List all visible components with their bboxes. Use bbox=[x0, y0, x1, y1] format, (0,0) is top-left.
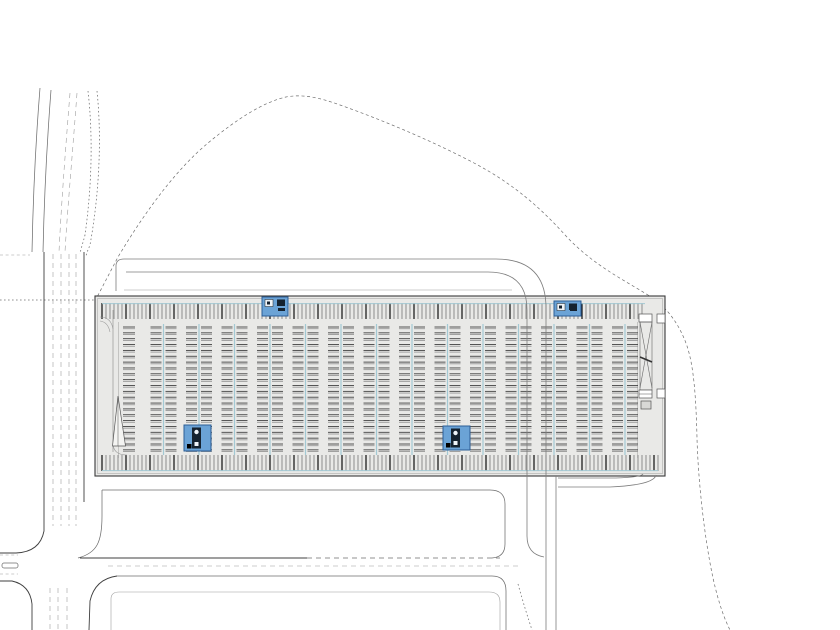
plot1-left-edge bbox=[78, 490, 102, 558]
upper-road-curb bbox=[86, 91, 99, 256]
median-island bbox=[2, 563, 18, 568]
upper-road-lane-line bbox=[59, 93, 70, 252]
upper-road-curb bbox=[80, 91, 91, 254]
plot1-outline bbox=[102, 490, 505, 558]
stair-core-elevator bbox=[443, 426, 470, 450]
intersection-se-flare bbox=[89, 576, 117, 630]
dotted-diagonal bbox=[518, 584, 532, 630]
plot2-inner-outline bbox=[111, 592, 500, 630]
upper-road-lane-line bbox=[65, 93, 77, 252]
stair-core-pavilion bbox=[262, 297, 288, 316]
loop-road-se-corner bbox=[558, 475, 656, 487]
south-plots bbox=[78, 490, 532, 630]
site-plan-drawing bbox=[0, 0, 840, 630]
stair-core-pavilion bbox=[554, 301, 581, 316]
plot2-outline bbox=[117, 576, 506, 630]
upper-road-edge bbox=[43, 90, 51, 252]
stair-core-elevator bbox=[184, 425, 211, 451]
intersection-sw-flare bbox=[0, 581, 32, 630]
upper-road-edge bbox=[32, 88, 40, 252]
vertical-road-left-edge bbox=[0, 252, 44, 553]
site-plan-canvas bbox=[0, 0, 840, 630]
structure-outline bbox=[95, 296, 665, 476]
parking-structure bbox=[95, 296, 665, 476]
